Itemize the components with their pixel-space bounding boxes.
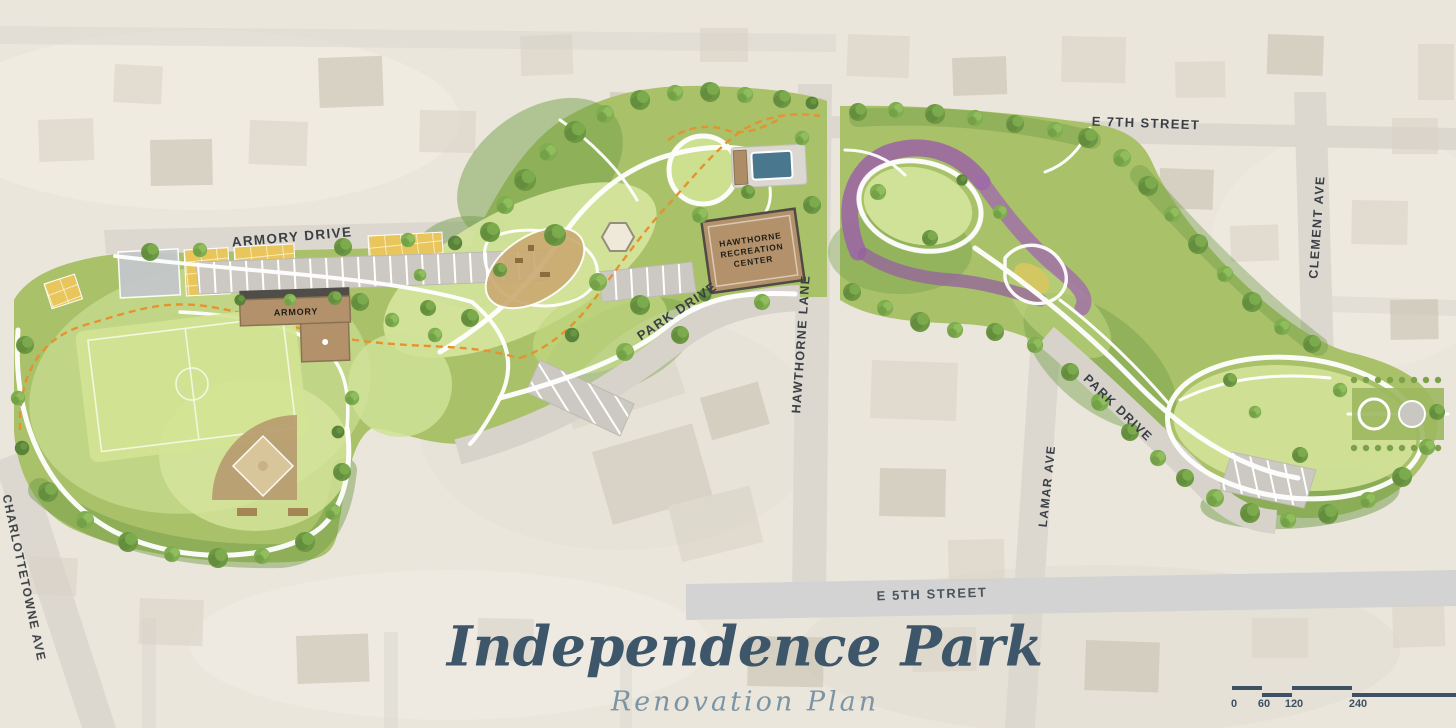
pool-area: [731, 144, 807, 188]
plan-subtitle: Renovation Plan: [611, 687, 879, 718]
scale-tick-60: 60: [1258, 698, 1270, 710]
swimming-pool: [751, 151, 792, 180]
scale-bar-segment: [1292, 686, 1352, 690]
scale-tick-240: 240: [1349, 698, 1367, 710]
rec-center-building: [701, 209, 804, 293]
plan-title: Independence Park: [447, 614, 1043, 679]
scale-bar-segment: [1352, 693, 1456, 697]
scale-tick-120: 120: [1285, 698, 1303, 710]
park-plan-map: ARMORY DRIVE E 7TH STREET CLEMENT AVE PA…: [0, 0, 1456, 728]
scale-bar: 0 60 120 240: [1232, 684, 1456, 716]
scale-bar-segment: [1232, 686, 1262, 690]
scale-tick-0: 0: [1231, 698, 1237, 710]
pavilion: [602, 223, 634, 251]
scale-bar-segment: [1262, 693, 1292, 697]
